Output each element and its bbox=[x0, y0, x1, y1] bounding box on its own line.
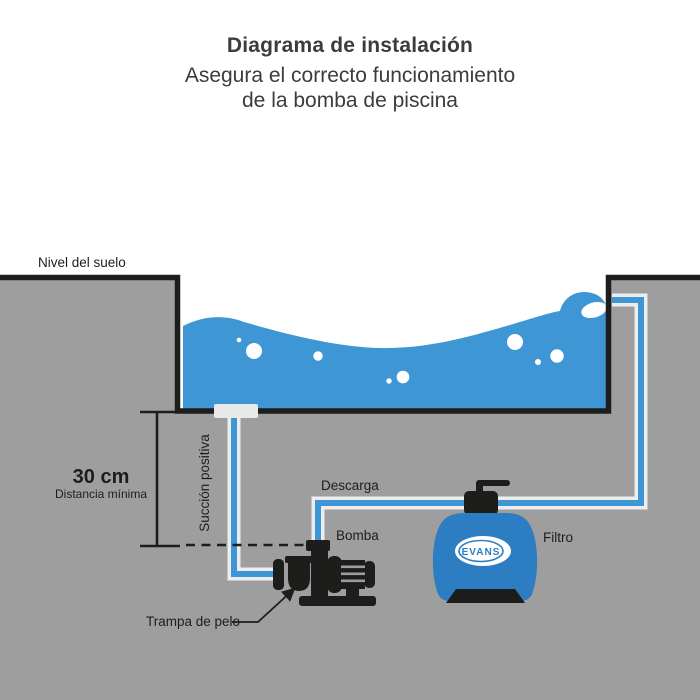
ground-level-label: Nivel del suelo bbox=[38, 255, 126, 270]
filter-brand-text: EVANS bbox=[462, 547, 501, 558]
page-title: Diagrama de instalación bbox=[0, 34, 700, 58]
valve-handle bbox=[476, 480, 510, 486]
hair-trap-pot bbox=[288, 562, 310, 591]
distance-value-label: 30 cm bbox=[73, 466, 130, 488]
header: Diagrama de instalación Asegura el corre… bbox=[0, 34, 700, 113]
motor-fin-gaps bbox=[341, 566, 365, 583]
pump-top-union bbox=[306, 540, 330, 551]
motor-front bbox=[327, 556, 342, 593]
subtitle-line-2: de la bomba de piscina bbox=[242, 89, 458, 112]
filter-base bbox=[446, 589, 525, 603]
pump-inlet-flange bbox=[273, 559, 284, 590]
pump-label: Bomba bbox=[336, 528, 379, 543]
discharge-label: Descarga bbox=[321, 478, 379, 493]
filter-brand-logo: EVANS bbox=[455, 536, 511, 566]
filter-label: Filtro bbox=[543, 530, 573, 545]
hair-trap-lid bbox=[285, 556, 313, 563]
installation-diagram: EVANS Nivel del suelo 30 cm Distancia mí… bbox=[0, 0, 700, 700]
distance-caption-label: Distancia mínima bbox=[55, 487, 147, 501]
page-subtitle: Asegura el correcto funcionamiento de la… bbox=[0, 63, 700, 113]
pump-body bbox=[311, 549, 328, 597]
valve-body bbox=[464, 491, 498, 515]
suction-label: Succión positiva bbox=[197, 434, 212, 532]
subtitle-line-1: Asegura el correcto funcionamiento bbox=[185, 64, 515, 87]
motor-end-cap bbox=[364, 561, 375, 588]
hair-trap-label: Trampa de pelo bbox=[146, 614, 240, 629]
drain-fitting bbox=[214, 404, 258, 418]
